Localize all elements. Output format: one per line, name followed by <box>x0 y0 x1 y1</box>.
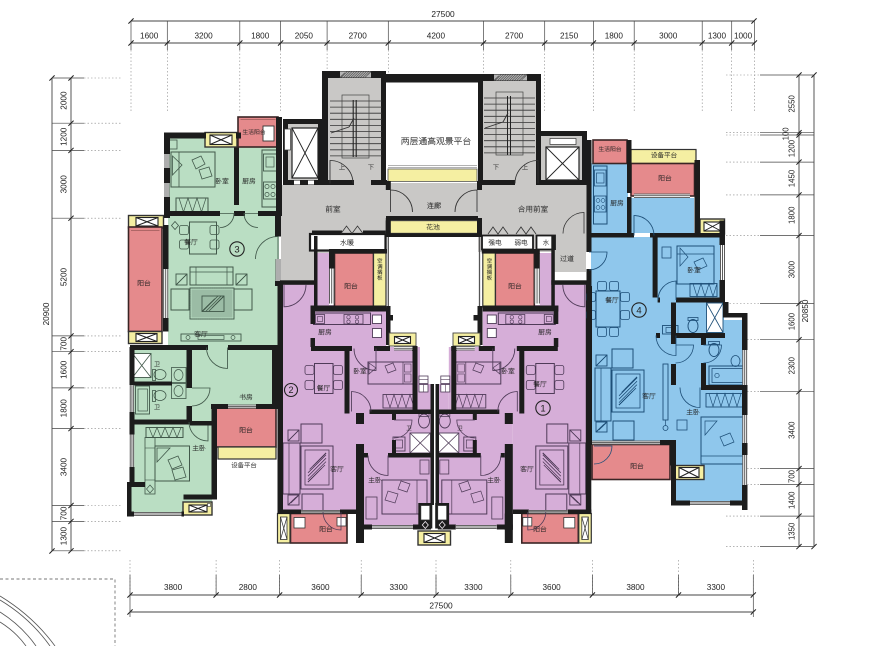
svg-text:3: 3 <box>234 244 239 255</box>
svg-text:1800: 1800 <box>60 399 69 418</box>
svg-text:1200: 1200 <box>60 127 69 146</box>
svg-text:700: 700 <box>60 337 69 351</box>
svg-text:3400: 3400 <box>788 421 797 439</box>
svg-text:20850: 20850 <box>801 299 810 322</box>
svg-text:3000: 3000 <box>659 32 678 41</box>
svg-text:1300: 1300 <box>60 527 69 546</box>
svg-text:27500: 27500 <box>429 601 453 611</box>
svg-text:3300: 3300 <box>707 583 726 592</box>
svg-text:2700: 2700 <box>505 32 524 41</box>
svg-text:1450: 1450 <box>788 169 797 187</box>
svg-text:1000: 1000 <box>734 32 753 41</box>
svg-text:3300: 3300 <box>389 583 408 592</box>
svg-text:1800: 1800 <box>788 206 797 224</box>
svg-text:3000: 3000 <box>60 175 69 194</box>
svg-text:3800: 3800 <box>164 583 183 592</box>
svg-text:3600: 3600 <box>311 583 330 592</box>
svg-text:2700: 2700 <box>349 32 368 41</box>
svg-text:3600: 3600 <box>542 583 561 592</box>
svg-text:27500: 27500 <box>431 9 455 19</box>
svg-text:2550: 2550 <box>788 95 797 113</box>
svg-text:2300: 2300 <box>788 356 797 374</box>
svg-text:700: 700 <box>788 469 797 483</box>
svg-text:1800: 1800 <box>251 32 270 41</box>
svg-text:1300: 1300 <box>708 32 727 41</box>
svg-text:1600: 1600 <box>788 312 797 330</box>
svg-text:3800: 3800 <box>626 583 645 592</box>
svg-text:3200: 3200 <box>194 32 213 41</box>
svg-text:1600: 1600 <box>140 32 159 41</box>
svg-text:2000: 2000 <box>60 91 69 110</box>
svg-text:4200: 4200 <box>427 32 446 41</box>
svg-text:100: 100 <box>782 127 791 141</box>
svg-text:1350: 1350 <box>788 522 797 540</box>
svg-text:1600: 1600 <box>60 360 69 379</box>
svg-text:2: 2 <box>288 385 293 395</box>
svg-text:1: 1 <box>540 403 545 414</box>
svg-text:5200: 5200 <box>60 267 69 286</box>
svg-text:2800: 2800 <box>239 583 258 592</box>
svg-text:2050: 2050 <box>295 32 314 41</box>
svg-text:3000: 3000 <box>788 260 797 278</box>
svg-text:1800: 1800 <box>605 32 624 41</box>
svg-text:700: 700 <box>60 506 69 520</box>
svg-text:3300: 3300 <box>464 583 483 592</box>
svg-text:2150: 2150 <box>560 32 579 41</box>
svg-text:1200: 1200 <box>788 139 797 157</box>
svg-text:20900: 20900 <box>42 302 51 325</box>
svg-text:3400: 3400 <box>60 457 69 476</box>
svg-text:4: 4 <box>636 305 641 316</box>
svg-text:1400: 1400 <box>788 491 797 509</box>
